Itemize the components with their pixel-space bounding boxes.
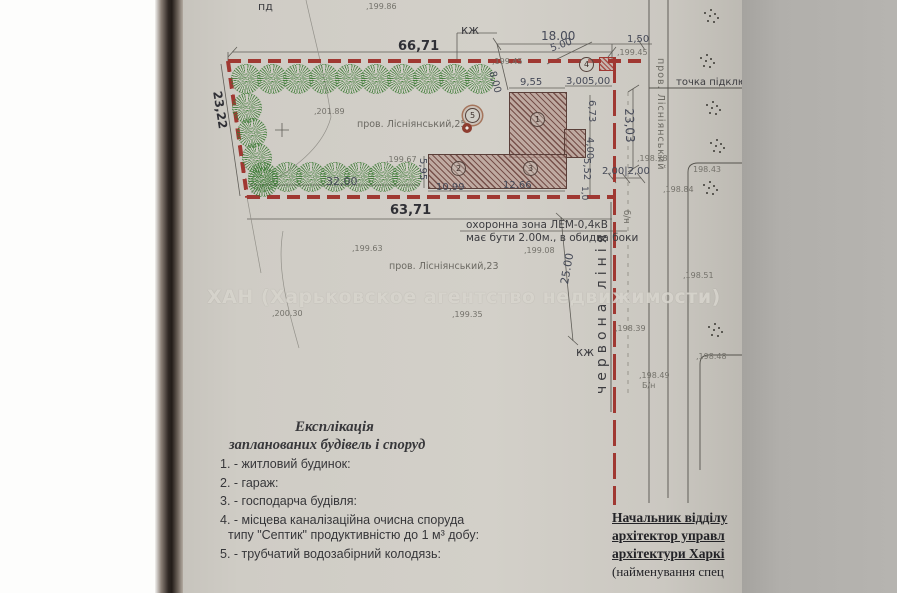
dim-text: 6,73 [586, 100, 597, 122]
elevation-mark: 198.43 [693, 165, 721, 174]
lbl-text: кж [576, 345, 594, 359]
well-point-icon [462, 123, 472, 133]
plan-marker-1: 1 [530, 112, 545, 127]
dim-text: 3,00 [566, 76, 588, 87]
dim-text: 5,95 [417, 158, 428, 180]
legend-title: Експлікація [295, 419, 513, 436]
dim-text: 66,71 [398, 39, 439, 54]
lbl-text: пд [258, 0, 273, 13]
vegetation-dots-icon [700, 57, 702, 59]
dim-text: 63,71 [390, 203, 431, 218]
dim-text: 2,00|2,00 [602, 166, 650, 177]
elevation-mark: ,199.63 [352, 244, 383, 253]
dim-text: 5,00 [588, 76, 610, 87]
dim-text: 4,00 [584, 137, 595, 159]
legend-subtitle: запланованих будівель і споруд [229, 437, 513, 454]
legend-item-4: 4. - місцева каналізаційна очисна споруд… [220, 513, 513, 527]
vegetation-dots-icon [708, 326, 710, 328]
vegetation-dots-icon [710, 142, 712, 144]
elevation-mark: ,199.45 [617, 48, 648, 57]
legend-block: Експлікація запланованих будівель і спор… [203, 419, 513, 565]
legend-item-3: 3. - господарча будівля: [220, 494, 513, 508]
dim-text: 9,55 [520, 77, 542, 88]
elevation-mark: ,201.89 [314, 107, 345, 116]
lbl-text: пров. Лісніянський,23 [389, 261, 499, 272]
plan-marker-2: 2 [451, 161, 466, 176]
legend-item-2: 2. - гараж: [220, 476, 513, 490]
elevation-mark: ,198.84 [663, 185, 694, 194]
lbl-text: кж [461, 23, 479, 37]
plan-marker-5: 5 [465, 108, 480, 123]
dim-text: 32,00 [326, 175, 358, 188]
legend-item-4-cont: типу "Септик" продуктивністю до 1 м³ доб… [228, 528, 513, 542]
plan-marker-3: 3 [523, 161, 538, 176]
site-plan-scan: ХАН (Харьковское агентство недвижимости)… [0, 0, 897, 593]
elevation-mark: ,199.67 [386, 155, 417, 164]
elevation-mark: ,198.51 [683, 271, 714, 280]
dim-text: 5,52 [581, 158, 592, 180]
scan-margin-right [742, 0, 897, 593]
lbl-text: червона лінія [594, 230, 610, 394]
elevation-mark: ,198.48 [696, 352, 727, 361]
vegetation-dots-icon [703, 184, 705, 186]
vegetation-dots-icon [704, 12, 706, 14]
building-1-house-annex [564, 129, 586, 158]
elevation-mark: ,199.86 [366, 2, 397, 11]
plan-marker-4: 4 [579, 57, 594, 72]
elevation-mark: ,198.78 [637, 154, 668, 163]
elevation-mark: ,199.35 [452, 310, 483, 319]
dim-text: 12,66 [503, 180, 532, 191]
lbl-text: б/н [621, 210, 631, 224]
red-line-street [613, 57, 616, 505]
elevation-mark: ,199.08 [524, 246, 555, 255]
scan-margin-left [0, 0, 155, 593]
elevation-mark: ,198.39 [615, 324, 646, 333]
elevation-mark: ,200.30 [272, 309, 303, 318]
elevation-mark: ,199.45 [492, 57, 523, 66]
plot-boundary-bottom [247, 195, 613, 199]
elevation-mark: Б/н [642, 381, 655, 390]
vegetation-dots-icon [706, 104, 708, 106]
lbl-text: пров. Лісніянський,25 [357, 119, 467, 130]
dim-text: 10,99 [436, 182, 465, 193]
page-fold-shadow [155, 0, 183, 593]
dim-text: 1,50 [627, 34, 649, 45]
legend-item-5: 5. - трубчатий водозабірний колодязь: [220, 547, 513, 561]
legend-item-1: 1. - житловий будинок: [220, 457, 513, 471]
lbl-text: охоронна зона ЛЕМ-0,4кВ [466, 219, 608, 231]
elevation-mark: ,198.49 [639, 371, 670, 380]
lbl-text: має бути 2.00м., в обидва боки [466, 232, 638, 244]
dim-text: 1,0 [579, 186, 589, 200]
agency-watermark: ХАН (Харьковское агентство недвижимости) [207, 286, 721, 308]
dim-text: 23,03 [622, 108, 637, 143]
septic-4-marker [599, 57, 614, 71]
